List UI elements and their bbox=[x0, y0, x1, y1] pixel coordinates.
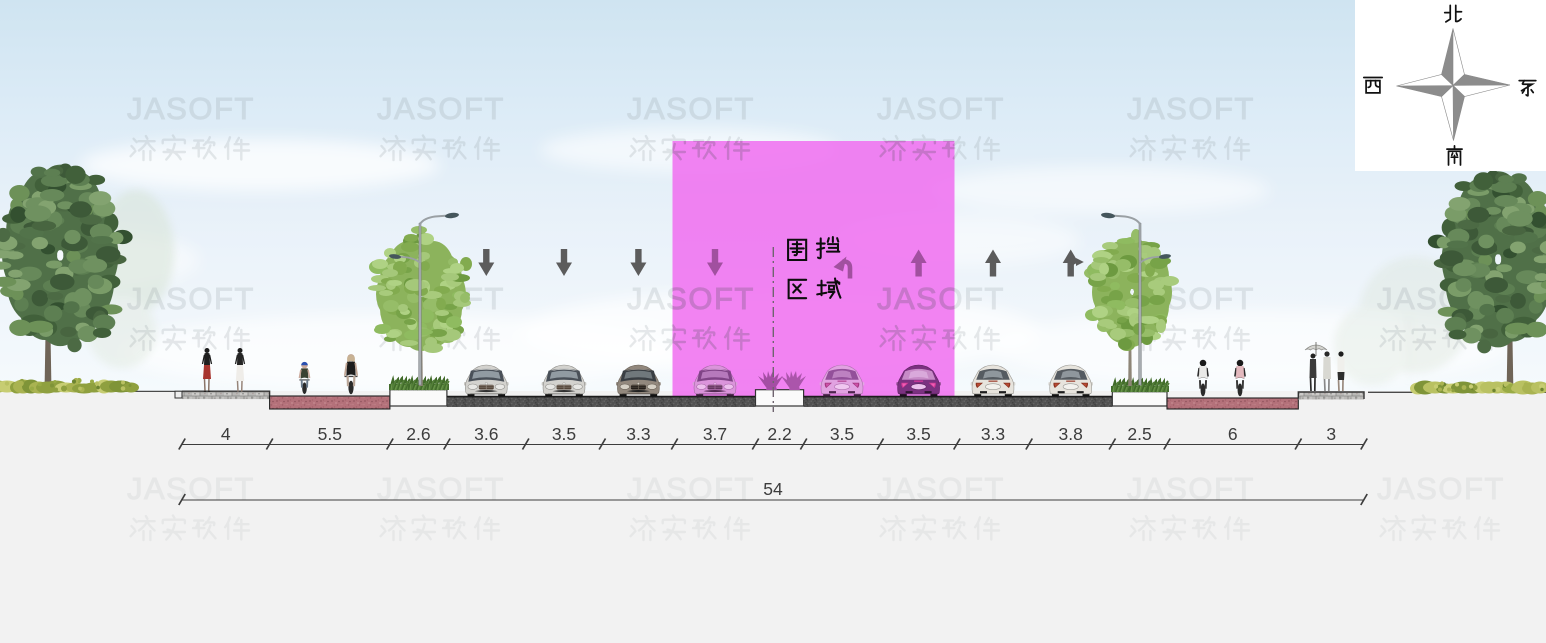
svg-text:2.5: 2.5 bbox=[1127, 424, 1151, 444]
svg-text:3.5: 3.5 bbox=[830, 424, 854, 444]
svg-text:3.3: 3.3 bbox=[626, 424, 650, 444]
svg-text:6: 6 bbox=[1228, 424, 1238, 444]
svg-text:2.2: 2.2 bbox=[767, 424, 791, 444]
svg-text:54: 54 bbox=[763, 479, 783, 499]
svg-text:3.5: 3.5 bbox=[552, 424, 576, 444]
svg-text:2.6: 2.6 bbox=[406, 424, 430, 444]
svg-text:3: 3 bbox=[1326, 424, 1336, 444]
svg-text:4: 4 bbox=[221, 424, 231, 444]
svg-text:3.6: 3.6 bbox=[474, 424, 498, 444]
svg-text:3.8: 3.8 bbox=[1059, 424, 1083, 444]
svg-text:5.5: 5.5 bbox=[318, 424, 342, 444]
svg-text:3.5: 3.5 bbox=[906, 424, 930, 444]
svg-text:3.3: 3.3 bbox=[981, 424, 1005, 444]
svg-text:3.7: 3.7 bbox=[703, 424, 727, 444]
